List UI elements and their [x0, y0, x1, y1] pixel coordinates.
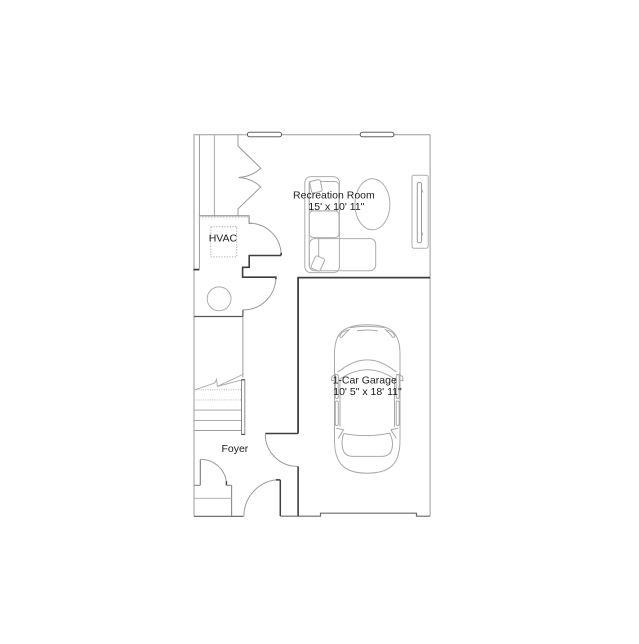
svg-text:1-Car Garage: 1-Car Garage — [333, 374, 397, 386]
svg-text:15' x 10' 11": 15' x 10' 11" — [308, 201, 364, 213]
svg-text:Recreation Room: Recreation Room — [293, 190, 375, 202]
svg-text:Foyer: Foyer — [221, 443, 248, 455]
svg-text:HVAC: HVAC — [209, 232, 238, 244]
svg-text:10' 5" x 18' 11": 10' 5" x 18' 11" — [333, 386, 402, 398]
